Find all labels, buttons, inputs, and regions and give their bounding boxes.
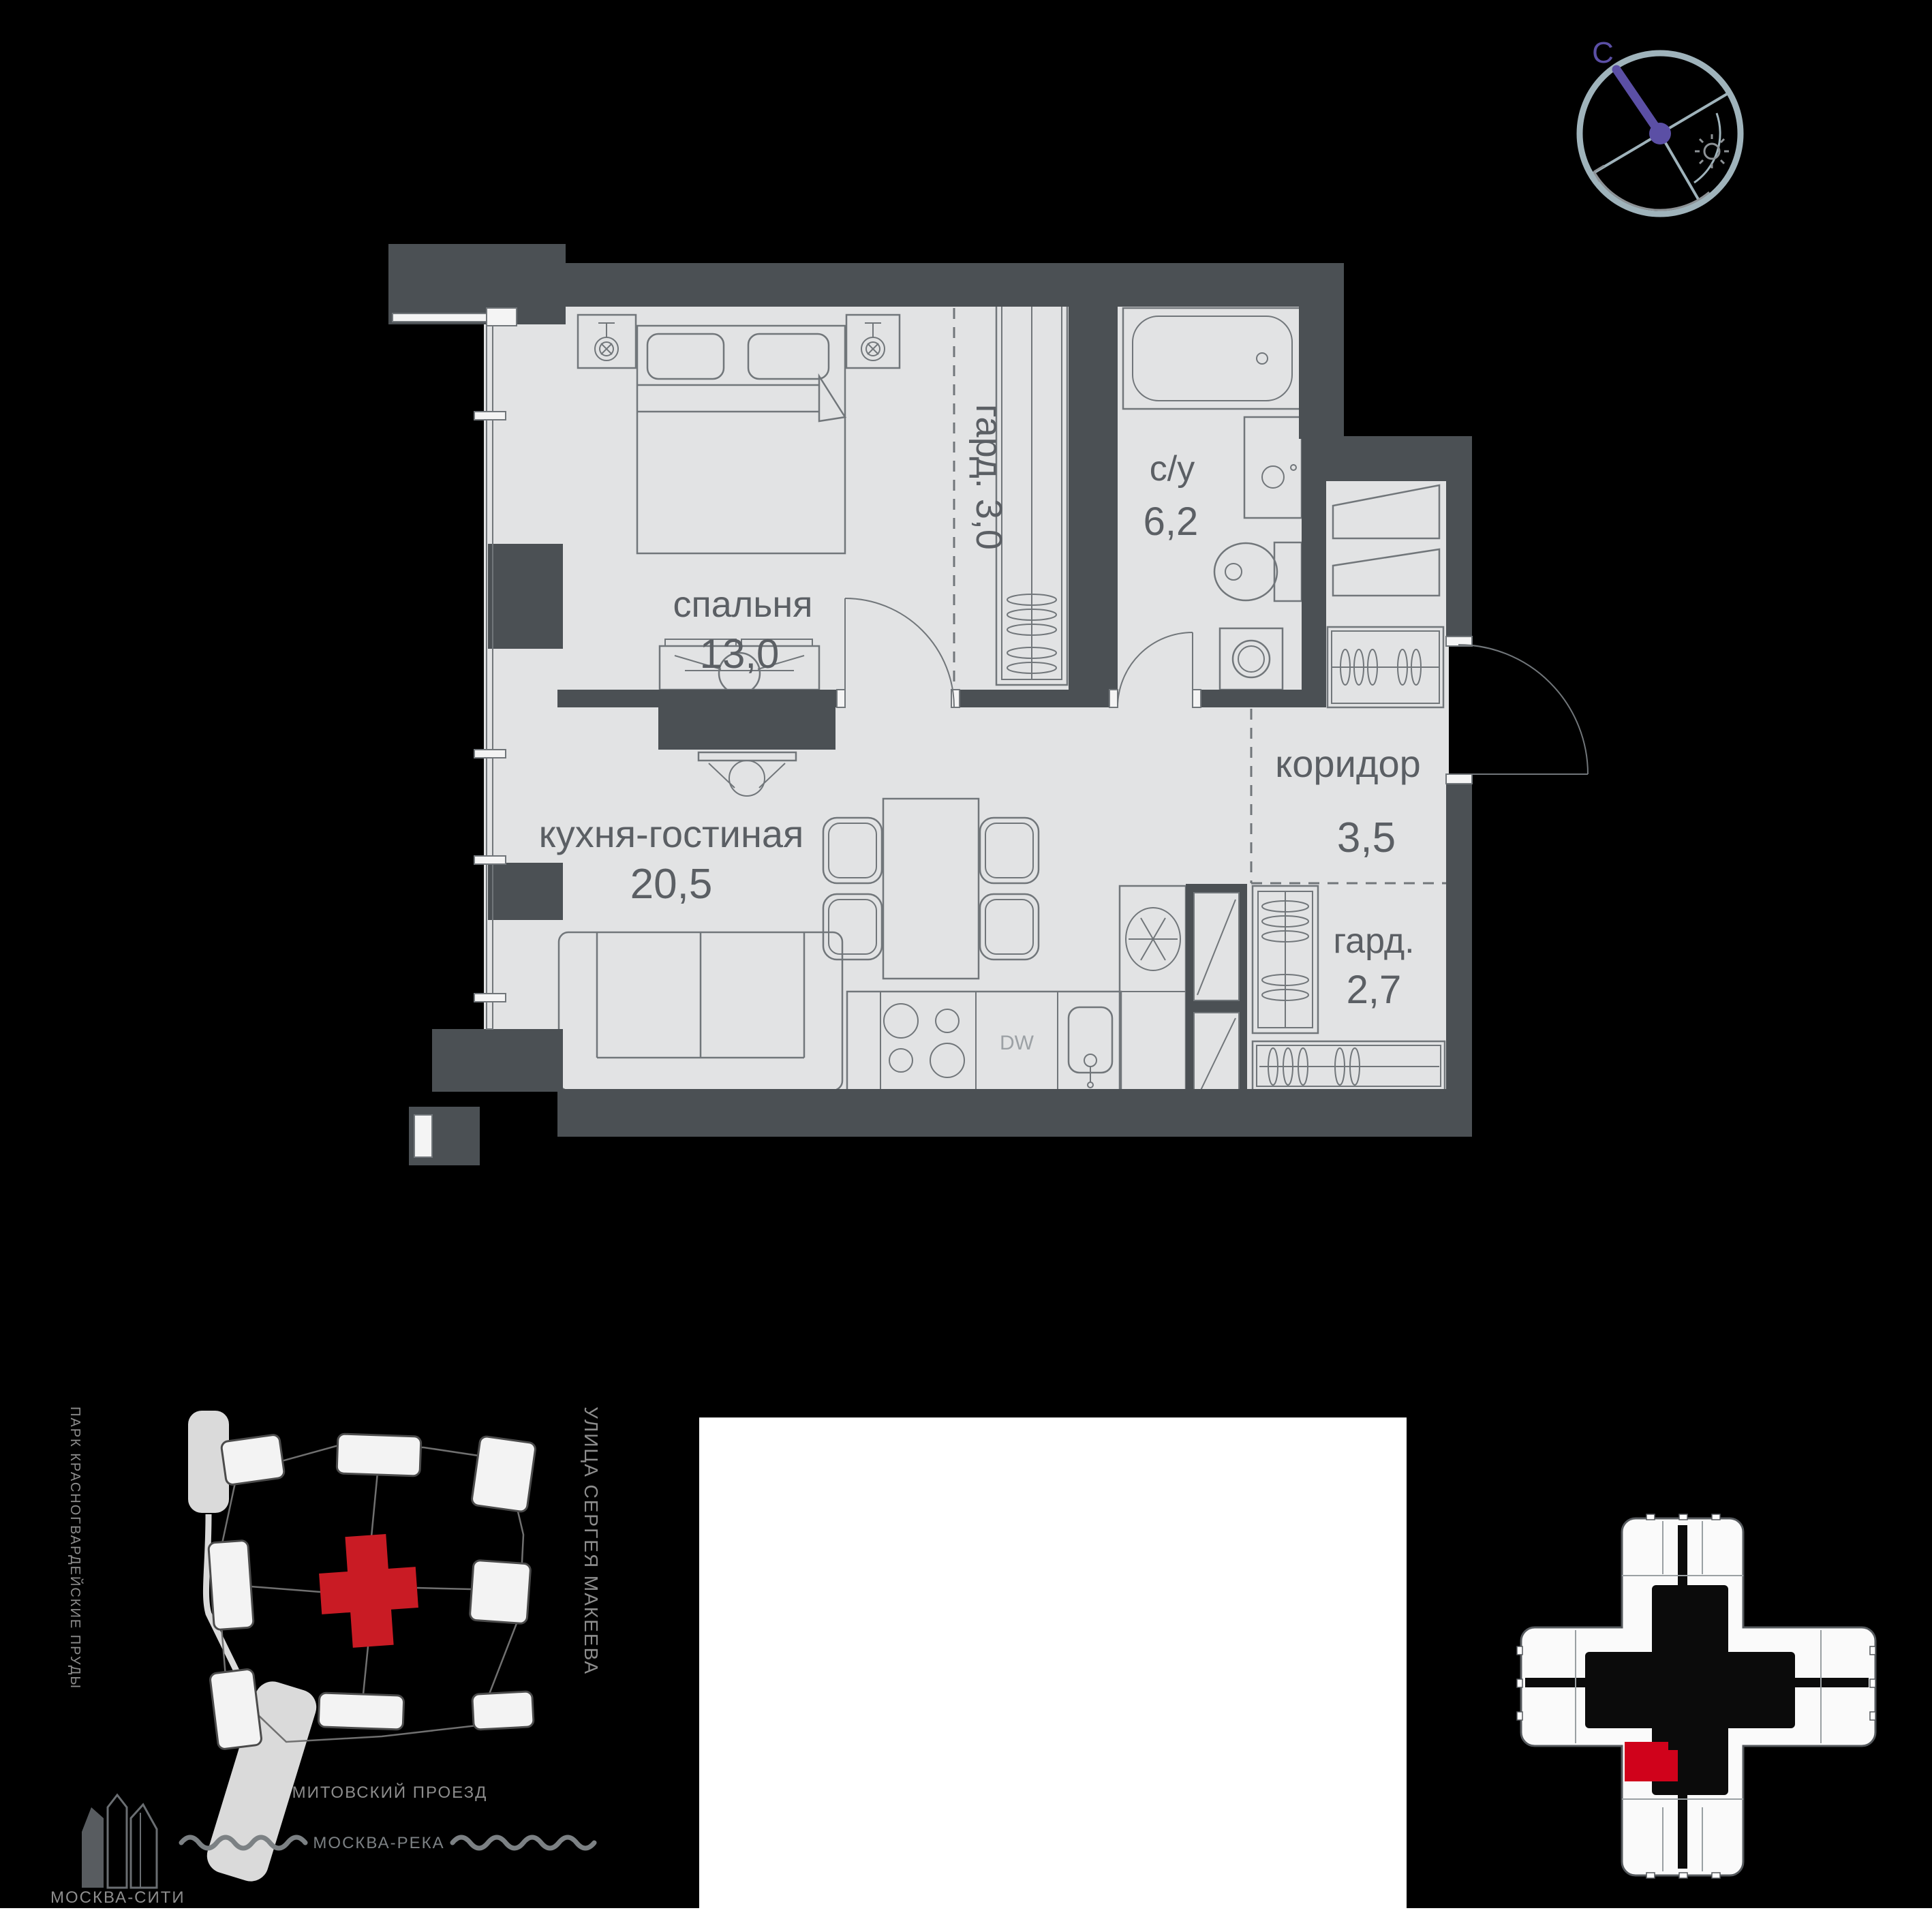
bottom-white-strip [0, 1908, 1932, 1932]
north-label: С [1592, 36, 1614, 70]
highlight-building [317, 1532, 421, 1650]
north-needle [1616, 70, 1660, 134]
tall-cabinets [1186, 884, 1247, 1112]
location-map: ПАРК КРАСНОГВАРДЕЙСКИЕ ПРУДЫ УЛИЦА СЕРГЕ… [50, 1407, 602, 1907]
wardrobe-hall-label: гард. [1333, 921, 1414, 961]
corridor-label: коридор [1275, 742, 1421, 785]
floorplan-canvas: DW [0, 0, 1932, 1932]
bathroom-area: 6,2 [1144, 500, 1199, 544]
bedroom-label: спальня [673, 584, 813, 625]
moscow-city-icon [82, 1795, 157, 1888]
street-right-label: УЛИЦА СЕРГЕЯ МАКЕЕВА [581, 1407, 602, 1675]
floorplan-page: DW [0, 0, 1932, 1932]
apartment-plan: DW [388, 244, 1588, 1165]
street-bottom-label: ШМИТОВСКИЙ ПРОЕЗД [276, 1783, 488, 1802]
dishwasher-label: DW [1000, 1032, 1034, 1054]
wardrobe-hall-area: 2,7 [1347, 968, 1402, 1012]
bedroom-area: 13,0 [700, 631, 780, 677]
corridor-area: 3,5 [1337, 814, 1396, 861]
compass-icon: С [1580, 36, 1741, 214]
moscow-city-label: МОСКВА-СИТИ [50, 1888, 185, 1907]
entry-door [1446, 637, 1588, 784]
center-white-panel [699, 1417, 1407, 1932]
river-wave-right [453, 1837, 594, 1848]
kitchen-living-label: кухня-гостиная [539, 812, 804, 855]
bathroom-label: с/у [1150, 449, 1195, 489]
tv-console [658, 707, 835, 750]
floor-keyplan [1517, 1514, 1875, 1878]
wardrobe-top-label: гард. 3,0 [968, 404, 1009, 550]
needle-hub [1649, 123, 1671, 144]
river-label: МОСКВА-РЕКА [313, 1834, 444, 1852]
compass-axis-stub [1660, 134, 1699, 200]
kitchen-living-area: 20,5 [630, 861, 713, 908]
park-label: ПАРК КРАСНОГВАРДЕЙСКИЕ ПРУДЫ [67, 1407, 84, 1689]
compass-inner-arc [1694, 113, 1720, 183]
